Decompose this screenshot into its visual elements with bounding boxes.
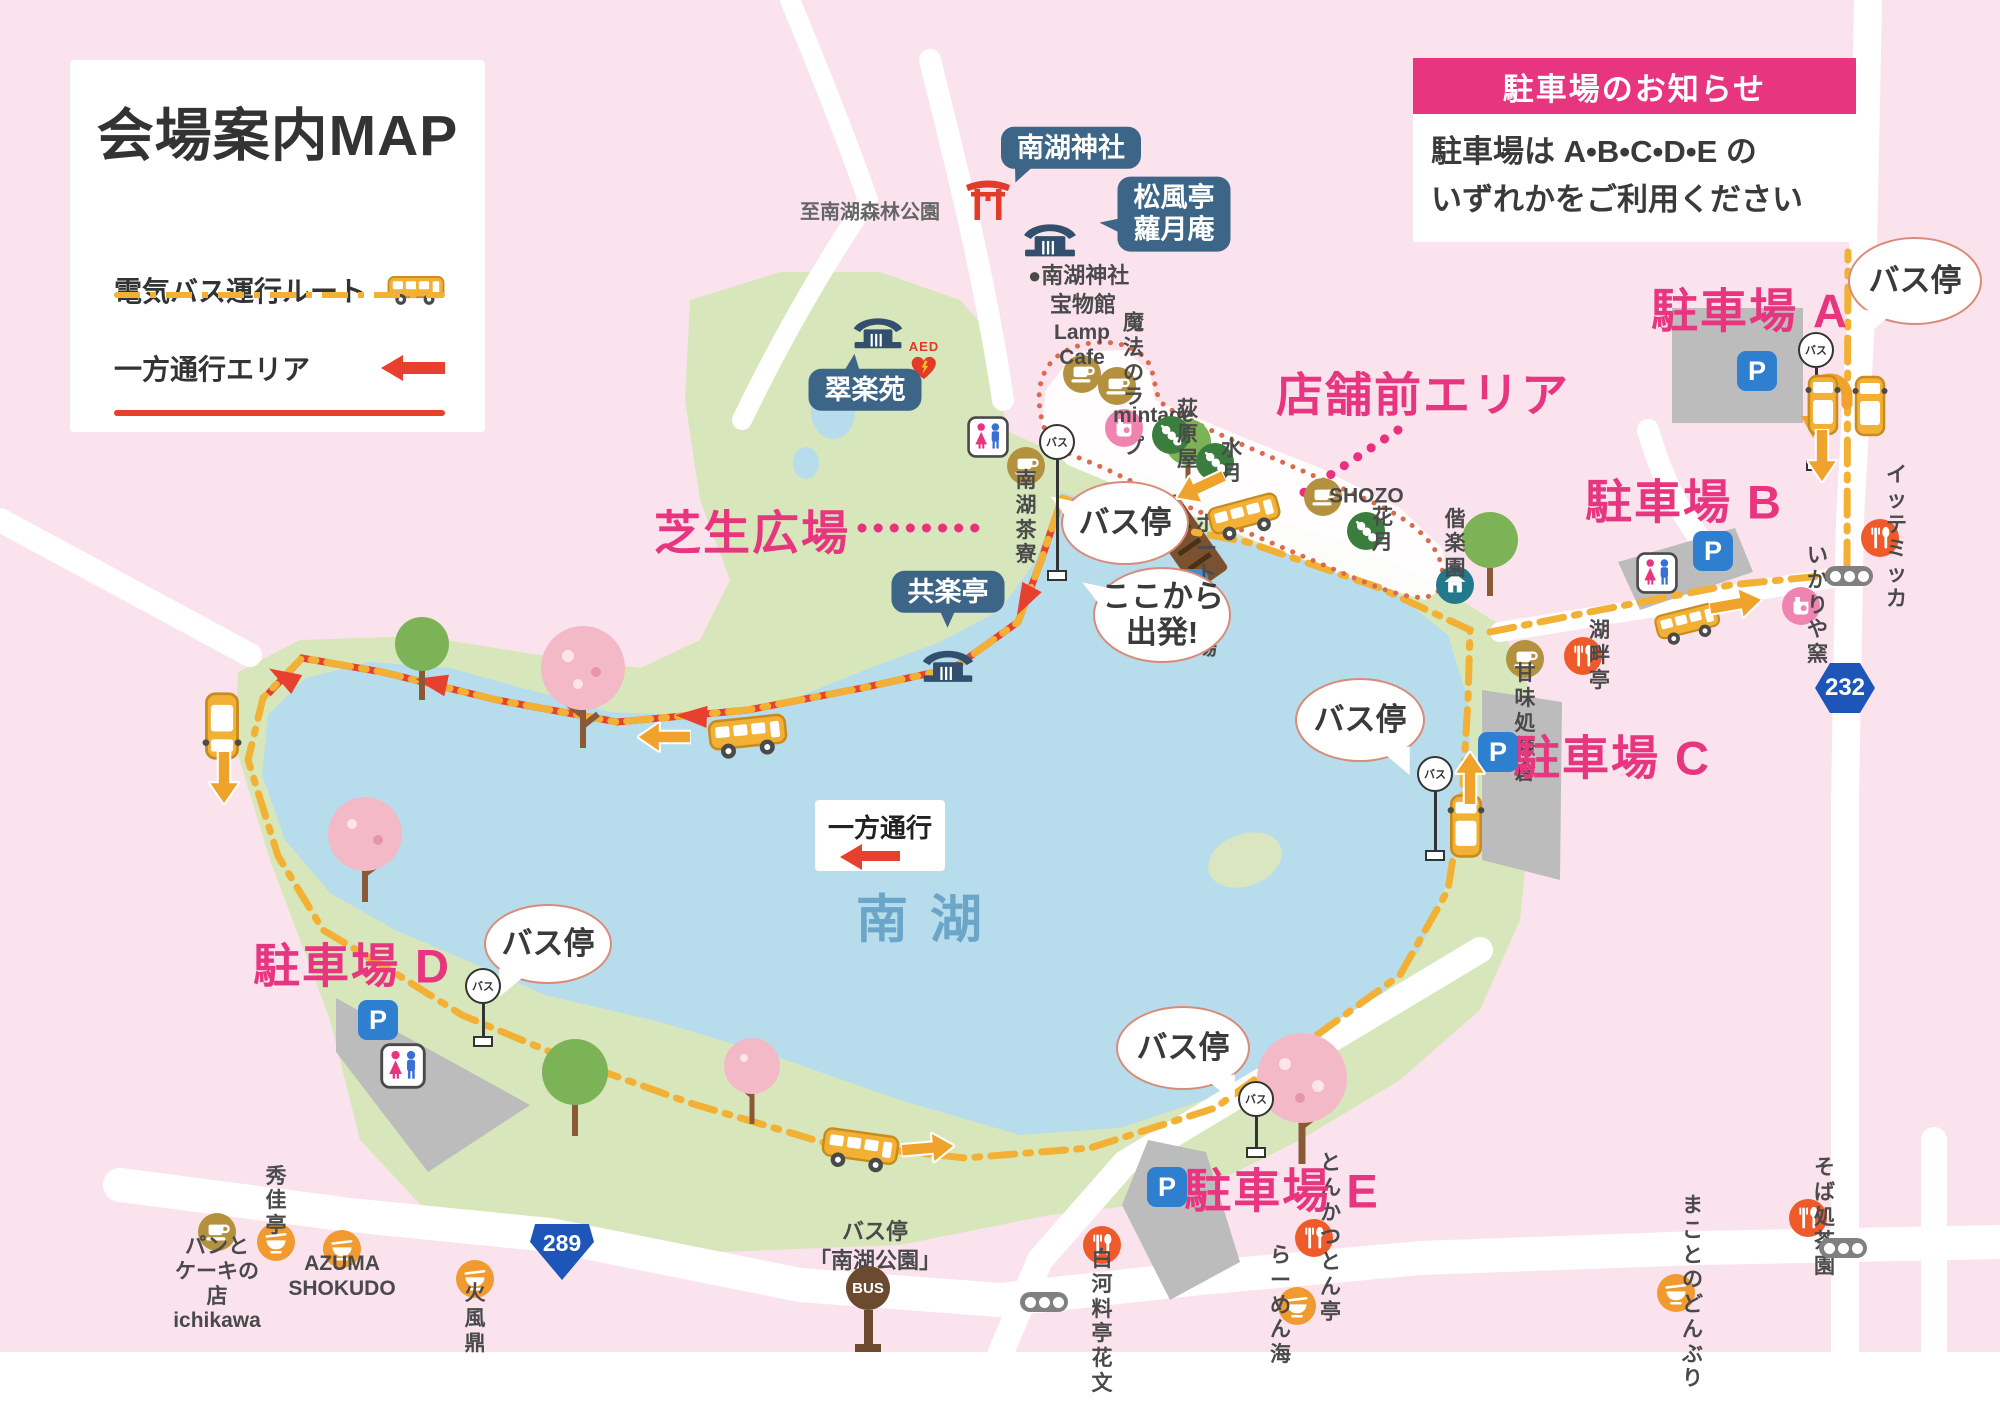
venue-guide-map: 会場案内MAP 電気バス運行ルート 一方通行エリア 駐車場のお知らせ 駐車場は … (0, 0, 2000, 1414)
shrine-building-icon (1021, 216, 1079, 264)
legend-box: 会場案内MAP 電気バス運行ルート 一方通行エリア (70, 60, 485, 432)
one-way-arrow-icon (401, 362, 445, 374)
bus-route-line-sample (114, 292, 445, 298)
one-way-sign-arrow (860, 851, 900, 861)
parking-notice: 駐車場のお知らせ 駐車場は A•B•C•D•E の いずれかをご利用ください (1413, 58, 1856, 242)
area-label-storefront: 店舗前エリア (1276, 357, 1570, 426)
kyorakutei-building-icon (920, 643, 976, 690)
aed-label: AED (909, 339, 939, 354)
area-label-lawn: 芝生広場 (654, 495, 850, 564)
legend-one-way-label: 一方通行エリア (114, 348, 310, 388)
torii-icon (964, 178, 1012, 220)
one-way-sign: 一方通行 (815, 800, 945, 871)
treasure-hall-label: ●南湖神社 宝物館 (1028, 262, 1129, 319)
one-way-sign-text: 一方通行 (828, 808, 932, 845)
parking-notice-line2: いずれかをご利用ください (1431, 176, 1856, 224)
bus-terminal-sign: BUS (846, 1266, 890, 1310)
one-way-line-sample (114, 410, 445, 416)
aed-heart-icon (909, 354, 939, 381)
suirakuen-building-icon (851, 311, 905, 356)
parking-notice-header: 駐車場のお知らせ (1413, 58, 1856, 114)
bus-terminal-pole: BUS (846, 1266, 890, 1352)
to-forest-park-label: 至南湖森林公園 (800, 196, 940, 225)
page-title: 会場案内MAP (70, 90, 485, 172)
bus-icon (387, 272, 445, 308)
aed-marker: AED (909, 339, 939, 381)
legend-bus-route-label: 電気バス運行ルート (114, 270, 366, 310)
lake-name: 南湖 (856, 878, 1004, 953)
parking-notice-line1: 駐車場は A•B•C•D•E の (1431, 128, 1856, 176)
